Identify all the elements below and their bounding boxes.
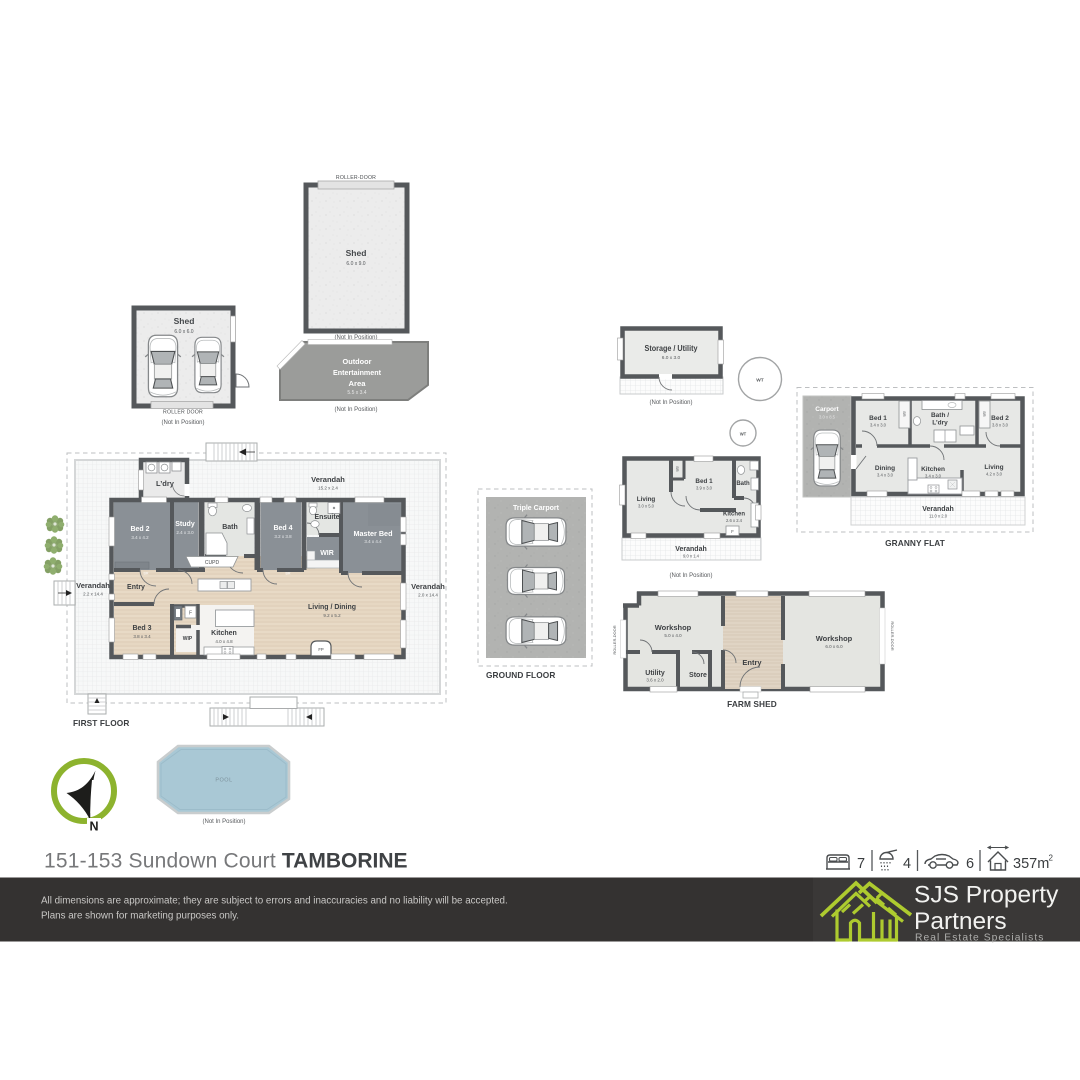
svg-text:Carport: Carport bbox=[815, 406, 839, 413]
svg-text:BR: BR bbox=[675, 466, 679, 472]
svg-text:Utility: Utility bbox=[645, 670, 665, 677]
svg-text:Bed 1: Bed 1 bbox=[869, 415, 887, 422]
svg-text:CUPD: CUPD bbox=[205, 560, 220, 566]
svg-text:6.0 x 9.0: 6.0 x 9.0 bbox=[346, 261, 365, 267]
svg-text:ROLLER-DOOR: ROLLER-DOOR bbox=[336, 175, 376, 181]
svg-text:3.4 x 4.4: 3.4 x 4.4 bbox=[364, 539, 382, 544]
svg-text:Store: Store bbox=[689, 672, 707, 679]
svg-text:4.2 x 3.0: 4.2 x 3.0 bbox=[986, 472, 1003, 477]
svg-text:Verandah: Verandah bbox=[411, 582, 445, 591]
svg-text:6.0 x 6.0: 6.0 x 6.0 bbox=[174, 329, 193, 335]
svg-text:Triple Carport: Triple Carport bbox=[513, 503, 560, 512]
svg-text:N: N bbox=[89, 820, 98, 834]
svg-text:BR: BR bbox=[982, 411, 986, 417]
svg-text:BR: BR bbox=[286, 572, 291, 576]
svg-text:BR: BR bbox=[902, 411, 906, 417]
svg-text:Bath: Bath bbox=[222, 524, 238, 531]
svg-text:GRANNY FLAT: GRANNY FLAT bbox=[885, 538, 945, 548]
svg-text:Outdoor: Outdoor bbox=[343, 357, 372, 366]
svg-text:2.0 x 14.4: 2.0 x 14.4 bbox=[418, 593, 438, 598]
svg-text:4.0 x 4.8: 4.0 x 4.8 bbox=[215, 639, 233, 644]
svg-text:6: 6 bbox=[966, 856, 974, 872]
svg-text:(Not In Position): (Not In Position) bbox=[650, 400, 693, 406]
svg-text:Living: Living bbox=[637, 496, 656, 503]
svg-text:F: F bbox=[731, 529, 734, 534]
svg-text:Bed 2: Bed 2 bbox=[130, 526, 149, 533]
svg-text:L’dry: L’dry bbox=[156, 479, 175, 488]
svg-text:2.6 x 2.4: 2.6 x 2.4 bbox=[726, 518, 743, 523]
svg-text:BR: BR bbox=[144, 572, 149, 576]
svg-text:4: 4 bbox=[903, 856, 911, 872]
svg-text:Bed 4: Bed 4 bbox=[273, 525, 292, 532]
svg-text:Area: Area bbox=[349, 379, 367, 388]
svg-text:6.0 x 3.0: 6.0 x 3.0 bbox=[662, 355, 681, 361]
svg-text:Study: Study bbox=[175, 521, 195, 528]
svg-text:Workshop: Workshop bbox=[816, 634, 853, 643]
svg-text:All dimensions are approximate: All dimensions are approximate; they are… bbox=[41, 896, 508, 907]
svg-text:Entry: Entry bbox=[742, 658, 762, 667]
svg-text:FARM SHED: FARM SHED bbox=[727, 699, 777, 709]
svg-text:3.6 x 2.0: 3.6 x 2.0 bbox=[646, 678, 664, 683]
svg-text:3.0 x 8.5: 3.0 x 8.5 bbox=[819, 415, 836, 420]
svg-text:Partners: Partners bbox=[914, 908, 1007, 935]
svg-text:5.0 x 4.0: 5.0 x 4.0 bbox=[664, 633, 682, 638]
svg-text:Bed 2: Bed 2 bbox=[991, 415, 1009, 422]
svg-text:3.4 x 3.0: 3.4 x 3.0 bbox=[870, 423, 887, 428]
svg-text:7: 7 bbox=[857, 856, 865, 872]
svg-text:WIR: WIR bbox=[320, 550, 334, 557]
svg-text:L’dry: L’dry bbox=[932, 420, 948, 427]
svg-text:ROLLER-DOOR: ROLLER-DOOR bbox=[612, 625, 617, 654]
svg-text:WT: WT bbox=[756, 378, 764, 384]
svg-text:Shed: Shed bbox=[174, 316, 195, 326]
svg-text:357m: 357m bbox=[1013, 856, 1049, 872]
svg-text:3.4 x 3.0: 3.4 x 3.0 bbox=[877, 473, 894, 478]
svg-text:5.5 x 3.4: 5.5 x 3.4 bbox=[347, 390, 366, 396]
svg-text:3.8 x 3.4: 3.8 x 3.4 bbox=[133, 634, 151, 639]
svg-text:151-153 Sundown Court TAMBORIN: 151-153 Sundown Court TAMBORINE bbox=[44, 850, 408, 873]
svg-text:WT: WT bbox=[740, 432, 747, 437]
svg-text:Dining: Dining bbox=[875, 465, 895, 472]
svg-text:POOL: POOL bbox=[215, 778, 232, 784]
svg-text:Verandah: Verandah bbox=[675, 546, 707, 553]
svg-text:WIP: WIP bbox=[183, 636, 193, 642]
svg-text:Ensuite: Ensuite bbox=[315, 514, 340, 521]
svg-text:15.2 x 2.4: 15.2 x 2.4 bbox=[318, 486, 338, 491]
svg-text:Entry: Entry bbox=[127, 584, 145, 591]
svg-text:Kitchen: Kitchen bbox=[211, 630, 237, 637]
svg-text:Shed: Shed bbox=[346, 248, 367, 258]
svg-text:2: 2 bbox=[1049, 854, 1054, 863]
svg-text:9.0 x 1.4: 9.0 x 1.4 bbox=[683, 554, 700, 559]
svg-text:Entertainment: Entertainment bbox=[333, 368, 381, 377]
svg-text:(Not In Position): (Not In Position) bbox=[203, 819, 246, 825]
svg-text:ROLLER DOOR: ROLLER DOOR bbox=[163, 410, 203, 416]
svg-text:Bath: Bath bbox=[736, 481, 750, 487]
svg-text:Verandah: Verandah bbox=[311, 475, 345, 484]
svg-text:Storage / Utility: Storage / Utility bbox=[645, 344, 699, 353]
svg-text:F: F bbox=[189, 611, 192, 617]
svg-text:Bed 3: Bed 3 bbox=[132, 625, 151, 632]
svg-text:11.0 x 2.0: 11.0 x 2.0 bbox=[929, 514, 948, 519]
svg-text:9.2 x 5.2: 9.2 x 5.2 bbox=[323, 613, 341, 618]
svg-text:Living / Dining: Living / Dining bbox=[308, 602, 356, 611]
svg-text:2.4 x 3.0: 2.4 x 3.0 bbox=[176, 530, 194, 535]
svg-text:2.2 x 14.4: 2.2 x 14.4 bbox=[83, 592, 103, 597]
svg-text:Plans are shown for marketing: Plans are shown for marketing purposes o… bbox=[41, 911, 239, 922]
svg-text:Real Estate Specialists: Real Estate Specialists bbox=[915, 933, 1044, 944]
svg-text:Kitchen: Kitchen bbox=[723, 512, 745, 518]
svg-text:ROLLER-DOOR: ROLLER-DOOR bbox=[890, 621, 895, 650]
svg-text:Bed 1: Bed 1 bbox=[695, 478, 713, 485]
svg-text:Verandah: Verandah bbox=[922, 506, 954, 513]
svg-text:GROUND FLOOR: GROUND FLOOR bbox=[486, 670, 555, 680]
svg-text:Bath /: Bath / bbox=[931, 412, 949, 419]
svg-text:Kitchen: Kitchen bbox=[921, 466, 945, 473]
svg-text:(Not In Position): (Not In Position) bbox=[162, 420, 205, 426]
svg-text:3.4 x 4.2: 3.4 x 4.2 bbox=[131, 535, 149, 540]
svg-text:(Not In Position): (Not In Position) bbox=[670, 573, 713, 579]
svg-text:FP: FP bbox=[318, 647, 324, 652]
svg-text:3.0 x 5.0: 3.0 x 5.0 bbox=[638, 504, 655, 509]
svg-text:6.0 x 6.0: 6.0 x 6.0 bbox=[825, 644, 843, 649]
svg-text:3.2 x 3.8: 3.2 x 3.8 bbox=[274, 534, 292, 539]
svg-text:3.9 x 3.0: 3.9 x 3.0 bbox=[696, 486, 713, 491]
svg-text:Verandah: Verandah bbox=[76, 581, 110, 590]
svg-text:Living: Living bbox=[984, 464, 1003, 471]
svg-text:(Not In Position): (Not In Position) bbox=[335, 407, 378, 413]
svg-text:SJS Property: SJS Property bbox=[914, 882, 1059, 909]
svg-text:Master Bed: Master Bed bbox=[354, 529, 393, 538]
svg-text:FIRST FLOOR: FIRST FLOOR bbox=[73, 718, 129, 728]
svg-text:Workshop: Workshop bbox=[655, 623, 692, 632]
svg-text:3.8 x 3.0: 3.8 x 3.0 bbox=[992, 423, 1009, 428]
svg-text:3.4 x 3.0: 3.4 x 3.0 bbox=[925, 474, 942, 479]
